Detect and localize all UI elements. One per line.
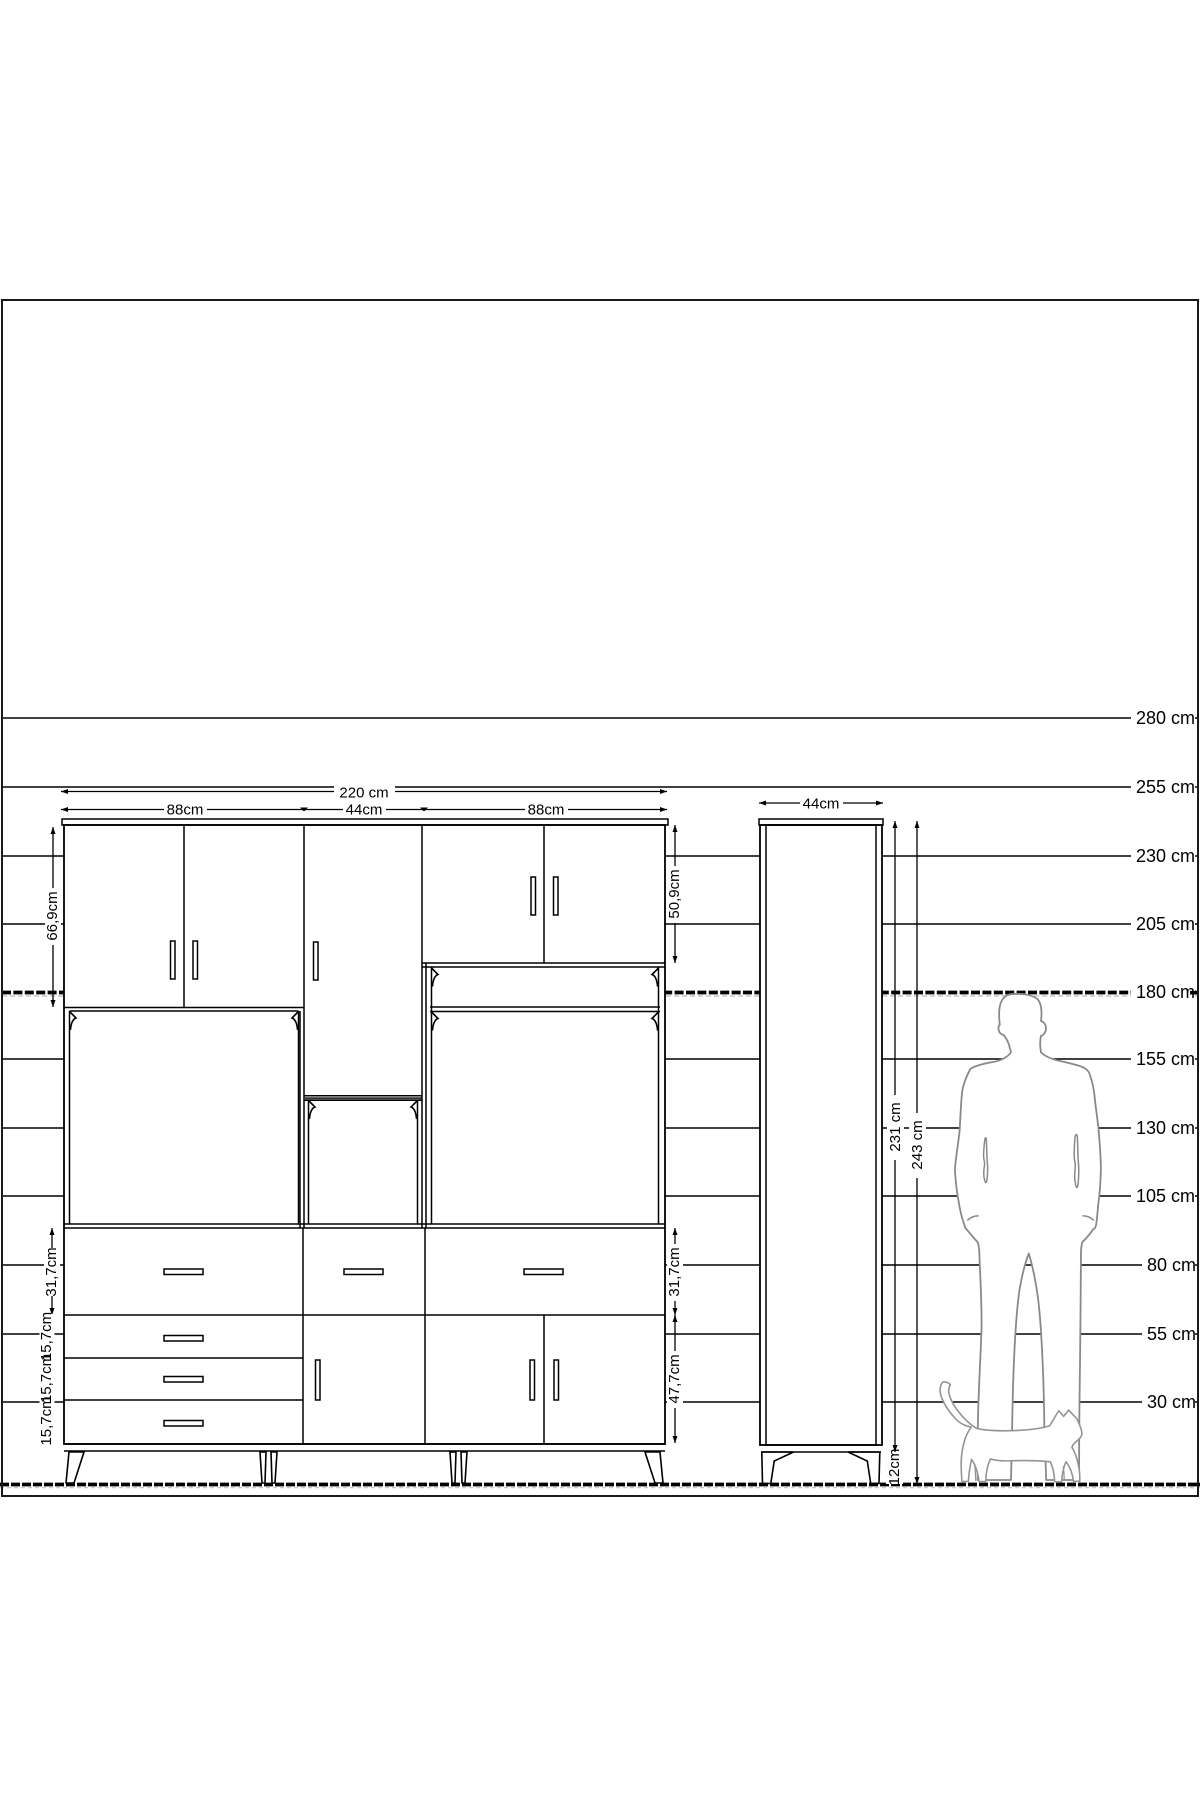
svg-text:15,7cm: 15,7cm	[38, 1312, 55, 1361]
svg-text:31,7cm: 31,7cm	[43, 1247, 60, 1296]
svg-text:15,7cm: 15,7cm	[38, 1396, 55, 1445]
svg-text:220 cm: 220 cm	[339, 785, 388, 802]
svg-text:88cm: 88cm	[528, 802, 565, 819]
svg-text:280 cm: 280 cm	[1136, 708, 1195, 728]
svg-text:66,9cm: 66,9cm	[44, 891, 61, 940]
svg-text:12cm: 12cm	[886, 1449, 903, 1486]
svg-text:231 cm: 231 cm	[887, 1102, 904, 1151]
svg-text:205 cm: 205 cm	[1136, 914, 1195, 934]
svg-text:105 cm: 105 cm	[1136, 1186, 1195, 1206]
svg-text:47,7cm: 47,7cm	[666, 1354, 683, 1403]
svg-text:180 cm: 180 cm	[1136, 982, 1195, 1002]
svg-text:88cm: 88cm	[167, 802, 204, 819]
svg-text:15,7cm: 15,7cm	[38, 1354, 55, 1403]
svg-text:155 cm: 155 cm	[1136, 1049, 1195, 1069]
svg-text:44cm: 44cm	[346, 802, 383, 819]
svg-text:50,9cm: 50,9cm	[666, 869, 683, 918]
svg-text:130 cm: 130 cm	[1136, 1118, 1195, 1138]
svg-text:44cm: 44cm	[803, 796, 840, 813]
svg-text:30 cm: 30 cm	[1147, 1392, 1196, 1412]
svg-text:255 cm: 255 cm	[1136, 777, 1195, 797]
svg-text:31,7cm: 31,7cm	[666, 1247, 683, 1296]
svg-text:55 cm: 55 cm	[1147, 1324, 1196, 1344]
svg-text:230 cm: 230 cm	[1136, 846, 1195, 866]
svg-text:243 cm: 243 cm	[909, 1120, 926, 1169]
svg-text:80 cm: 80 cm	[1147, 1255, 1196, 1275]
